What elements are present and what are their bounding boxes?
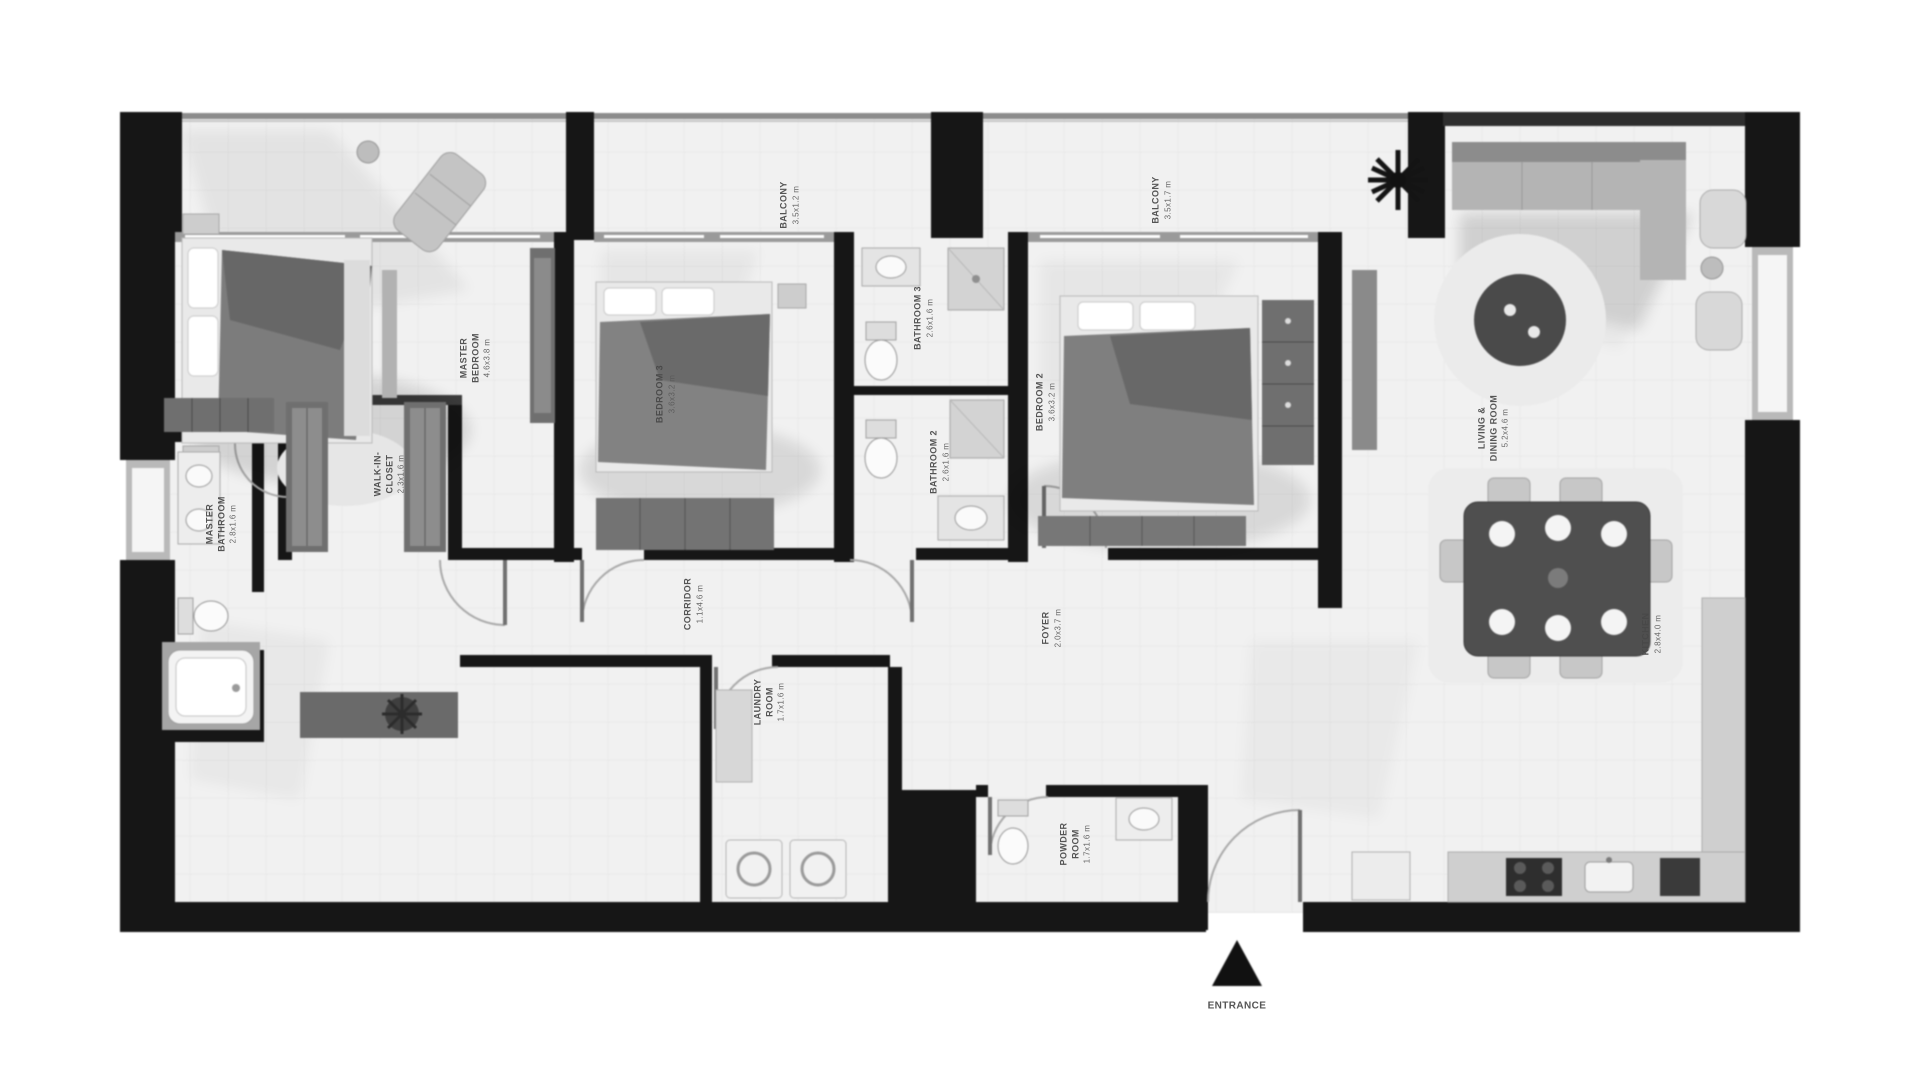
room-name: BATHROOM 2 — [928, 425, 940, 499]
entrance-marker-icon — [1212, 940, 1262, 986]
room-dims: 1.7x1.6 m — [777, 669, 787, 735]
bedroom2-wardrobe — [1038, 516, 1246, 546]
label-master-bedroom: MASTER BEDROOM 4.6x3.8 m — [459, 326, 494, 390]
label-balcony-1: BALCONY 3.5x1.2 m — [778, 169, 801, 241]
entrance-text: ENTRANCE — [1192, 1000, 1282, 1013]
room-dims: 2.8x1.6 m — [229, 489, 239, 559]
room-name: LIVING & DINING ROOM — [1477, 392, 1500, 464]
floor-plan-graphic — [0, 0, 1920, 1080]
plant-icon — [1368, 150, 1428, 210]
bedroom2-dresser — [1262, 300, 1314, 465]
terrace-side-table — [357, 141, 379, 163]
room-name: POWDER ROOM — [1059, 814, 1082, 874]
label-entrance: ENTRANCE — [1192, 1000, 1282, 1013]
room-dims: 5.2x4.6 m — [1501, 392, 1511, 464]
label-master-bathroom: MASTER BATHROOM 2.8x1.6 m — [205, 489, 240, 559]
master-tv-dresser — [530, 248, 555, 423]
room-dims: 2.8x4.0 m — [1653, 604, 1663, 664]
room-name: LAUNDRY ROOM — [753, 669, 776, 735]
room-dims: 3.5x1.2 m — [791, 169, 801, 241]
room-name: FOYER — [1040, 598, 1052, 658]
label-bedroom-3: BEDROOM 3 3.6x3.2 m — [654, 358, 677, 430]
label-bathroom-3: BATHROOM 3 2.6x1.6 m — [912, 281, 935, 355]
room-dims: 2.6x1.6 m — [925, 281, 935, 355]
label-living-dining-room: LIVING & DINING ROOM 5.2x4.6 m — [1477, 392, 1512, 464]
label-foyer: FOYER 2.0x3.7 m — [1040, 598, 1063, 658]
room-dims: 1.7x1.6 m — [1083, 814, 1093, 874]
label-corridor: CORRIDOR 1.1x4.6 m — [682, 567, 705, 641]
room-dims: 2.0x3.7 m — [1053, 598, 1063, 658]
floor-plan-page: BALCONY 3.5x1.2 m BALCONY 3.5x1.7 m MAST… — [0, 0, 1920, 1080]
bedroom3-wardrobe — [596, 498, 774, 550]
room-dims: 3.5x1.7 m — [1163, 164, 1173, 236]
label-laundry-room: LAUNDRY ROOM 1.7x1.6 m — [753, 669, 788, 735]
room-name: WALK-IN-CLOSET — [373, 443, 396, 505]
room-name: MASTER BATHROOM — [205, 489, 228, 559]
room-dims: 2.6x1.6 m — [941, 425, 951, 499]
living-console — [1352, 270, 1377, 450]
room-name: BEDROOM 3 — [654, 358, 666, 430]
room-name: KITCHEN — [1640, 604, 1652, 664]
label-balcony-2: BALCONY 3.5x1.7 m — [1150, 164, 1173, 236]
room-dims: 1.1x4.6 m — [695, 567, 705, 641]
room-name: BEDROOM 2 — [1034, 366, 1046, 438]
room-dims: 2.3x1.6 m — [397, 443, 407, 505]
label-powder-room: POWDER ROOM 1.7x1.6 m — [1059, 814, 1094, 874]
room-name: BALCONY — [778, 169, 790, 241]
label-walk-in-closet: WALK-IN-CLOSET 2.3x1.6 m — [373, 443, 408, 505]
coffee-table — [1434, 234, 1606, 406]
label-kitchen: KITCHEN 2.8x4.0 m — [1640, 604, 1663, 664]
hall-console-table — [300, 692, 458, 738]
label-bedroom-2: BEDROOM 2 3.6x3.2 m — [1034, 366, 1057, 438]
room-dims: 4.6x3.8 m — [483, 326, 493, 390]
room-dims: 3.6x3.2 m — [667, 358, 677, 430]
label-bathroom-2: BATHROOM 2 2.6x1.6 m — [928, 425, 951, 499]
room-name: MASTER BEDROOM — [459, 326, 482, 390]
room-name: BALCONY — [1150, 164, 1162, 236]
master-south-dresser — [164, 398, 274, 432]
room-name: CORRIDOR — [682, 567, 694, 641]
room-dims: 3.6x3.2 m — [1047, 366, 1057, 438]
room-name: BATHROOM 3 — [912, 281, 924, 355]
